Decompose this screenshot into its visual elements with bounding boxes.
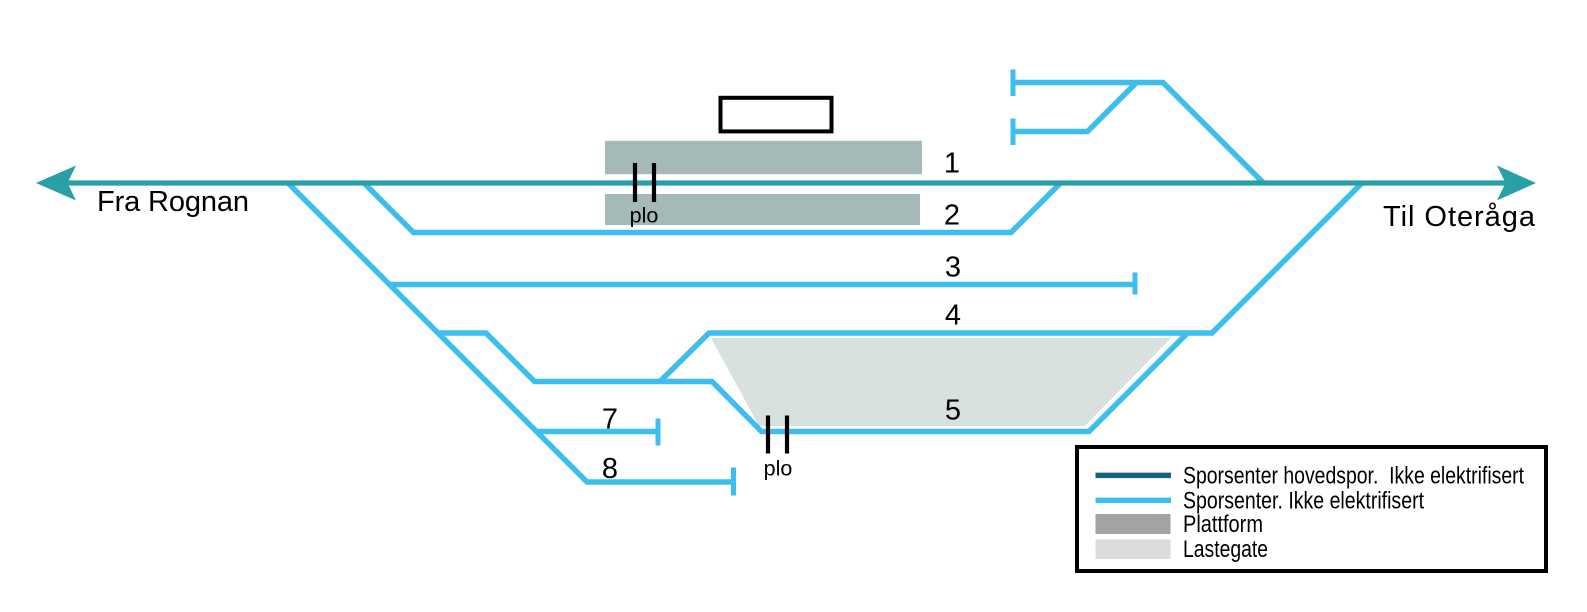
svg-text:Plattform: Plattform — [1183, 511, 1263, 538]
svg-text:plo: plo — [630, 204, 659, 228]
svg-text:Sporsenter hovedspor. Ikke el: Sporsenter hovedspor. Ikke elektrifisert — [1183, 462, 1524, 489]
svg-text:Lastegate: Lastegate — [1183, 536, 1268, 563]
svg-text:3: 3 — [945, 251, 961, 283]
svg-text:Til Oteråga: Til Oteråga — [1383, 201, 1536, 233]
svg-text:Fra Rognan: Fra Rognan — [97, 186, 249, 218]
svg-text:2: 2 — [944, 200, 960, 232]
svg-text:5: 5 — [945, 394, 961, 426]
svg-text:7: 7 — [602, 404, 618, 436]
svg-text:8: 8 — [602, 453, 618, 485]
svg-text:plo: plo — [764, 457, 793, 481]
svg-text:4: 4 — [945, 299, 961, 331]
svg-text:1: 1 — [944, 147, 960, 179]
